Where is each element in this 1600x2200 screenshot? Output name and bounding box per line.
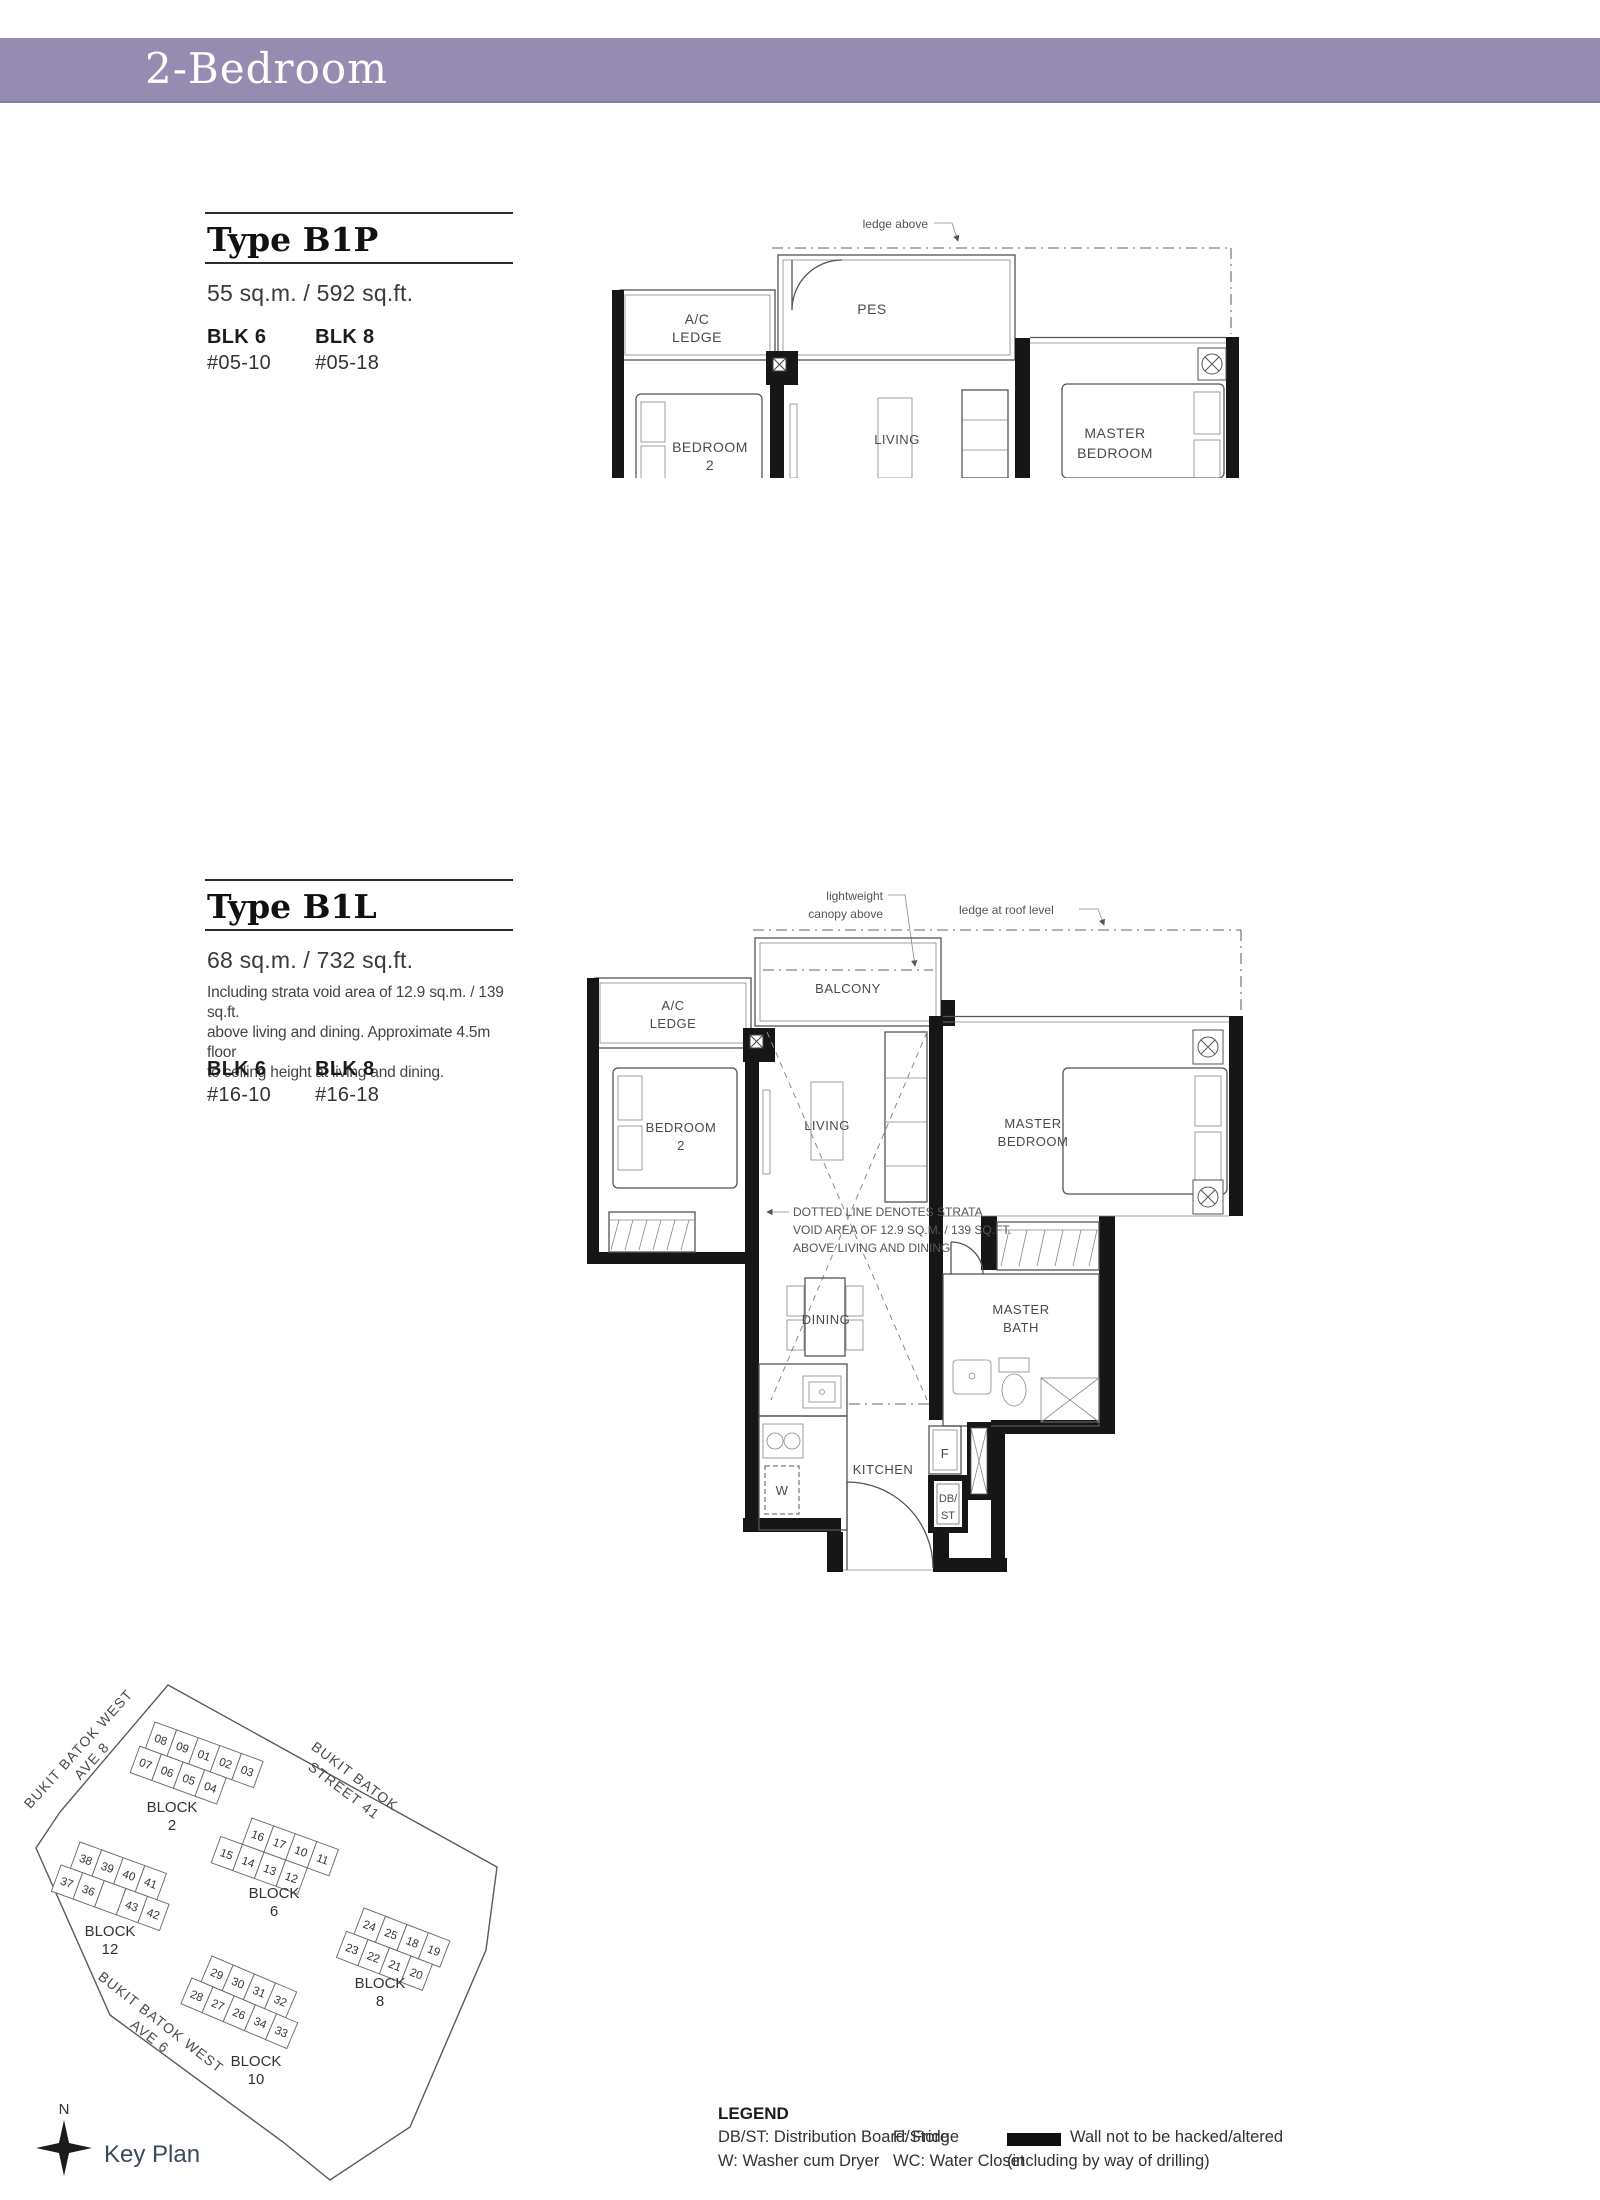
b1l-bedroom2-label-1: BEDROOM [646, 1120, 717, 1135]
compass-icon: N [36, 2101, 92, 2176]
block-2-label: BLOCK [147, 1799, 198, 1816]
b1p-ac-label-1: A/C [685, 311, 710, 327]
b1p-wc-icon [1198, 348, 1226, 380]
b1p-ledge-line: ledge above [772, 217, 1231, 334]
svg-text:8: 8 [376, 1993, 384, 2010]
b1l-bedroom2-wardrobe [609, 1212, 695, 1252]
block-10-label: BLOCK [231, 2053, 282, 2070]
wall-swatch [1007, 2133, 1061, 2146]
street-bukit-batok-west-ave8: BUKIT BATOK WEST AVE 8 [21, 1686, 150, 1824]
b1p-entry-door-arc [792, 260, 842, 310]
b1l-balcony-label: BALCONY [815, 981, 881, 996]
b1l-void-annotation: DOTTED LINE DENOTES STRATA VOID AREA OF … [767, 1205, 1012, 1255]
b1l-void-label-1: DOTTED LINE DENOTES STRATA [793, 1205, 983, 1219]
legend-washer: W: Washer cum Dryer [718, 2152, 879, 2171]
keyplan-block-12: 38 39 40 41 37 36 43 42 [51, 1839, 178, 1931]
keyplan-title: Key Plan [104, 2141, 200, 2168]
b1l-washer-label: W [776, 1483, 789, 1498]
b1l-kitchen-cooktop [763, 1424, 803, 1458]
b1l-bath-toilet [1002, 1374, 1026, 1406]
b1l-ac-label-1: A/C [661, 998, 684, 1013]
b1l-dining-label: DINING [802, 1312, 851, 1327]
b1p-rule-top [205, 212, 513, 214]
b1l-note-line1: Including strata void area of 12.9 sq.m.… [207, 984, 504, 1021]
b1l-rule-bottom [205, 929, 513, 931]
compass-north-label: N [59, 2101, 70, 2118]
b1l-area: 68 sq.m. / 732 sq.ft. [207, 947, 413, 974]
b1l-bath-door-arc [951, 1242, 983, 1274]
b1l-void-label-3: ABOVE LIVING AND DINING [793, 1241, 950, 1255]
block-12-label: BLOCK [85, 1923, 136, 1940]
b1l-bath-shower [1041, 1378, 1099, 1422]
b1l-shaft-icon [750, 1035, 763, 1048]
block-8-label: BLOCK [355, 1975, 406, 1992]
legend-wall-note-2: (including by way of drilling) [1007, 2152, 1210, 2171]
b1l-walls [587, 978, 1243, 1572]
b1l-room-ac-ledge: A/C LEDGE [595, 978, 751, 1048]
svg-text:10: 10 [248, 2071, 265, 2088]
b1p-stack-blk8: BLK 8 #05-18 [315, 326, 379, 375]
b1l-canopy-label-2: canopy above [808, 907, 883, 921]
b1p-type-heading: Type B1P [207, 220, 378, 259]
b1l-bath-sink [953, 1360, 991, 1394]
b1p-room-bedroom2: BEDROOM 2 [636, 394, 762, 478]
b1l-type-heading: Type B1L [207, 887, 377, 926]
b1p-blk8-label: BLK 8 [315, 326, 379, 349]
keyplan-block-10: 29 30 31 32 28 27 26 34 33 [181, 1952, 309, 2048]
b1p-room-living: LIVING [790, 390, 1008, 478]
b1p-floor-plan: ledge above PES A/C LEDGE [610, 148, 1240, 478]
b1l-wc-icon-top [1193, 1030, 1223, 1064]
b1l-master-label-2: BEDROOM [998, 1134, 1069, 1149]
b1p-area: 55 sq.m. / 592 sq.ft. [207, 280, 413, 307]
b1l-kitchen-label: KITCHEN [853, 1462, 914, 1477]
b1l-roof-ledge-label: ledge at roof level [959, 903, 1054, 917]
b1l-stack-blk6: BLK 6 #16-10 [207, 1058, 271, 1107]
svg-text:BUKIT BATOK WEST: BUKIT BATOK WEST [21, 1686, 136, 1812]
b1l-wc-icon-bottom [1193, 1180, 1223, 1214]
b1l-blk8-label: BLK 8 [315, 1058, 379, 1081]
b1p-pes-label: PES [857, 301, 887, 317]
page-title: 2-Bedroom [145, 44, 388, 93]
b1p-room-ac-ledge: A/C LEDGE [620, 290, 775, 360]
b1p-ac-label-2: LEDGE [672, 329, 722, 345]
b1l-master-wardrobe [997, 1222, 1099, 1270]
b1l-st-label: ST [941, 1510, 955, 1522]
b1l-db-st: DB/ ST [931, 1478, 965, 1530]
b1l-blk8-unit: #16-18 [315, 1084, 379, 1107]
b1l-bath-label-1: MASTER [992, 1302, 1049, 1317]
b1l-bath-label-2: BATH [1003, 1320, 1039, 1335]
brochure-page: 2-Bedroom Type B1P 55 sq.m. / 592 sq.ft.… [0, 0, 1600, 2200]
b1l-stacks: BLK 6 #16-10 BLK 8 #16-18 [207, 1058, 423, 1107]
b1p-bedroom2-label-1: BEDROOM [672, 439, 748, 455]
svg-text:6: 6 [270, 1903, 278, 1920]
b1p-blk6-label: BLK 6 [207, 326, 271, 349]
key-plan: BUKIT BATOK WEST AVE 8 BUKIT BATOK STREE… [0, 1680, 500, 2200]
b1l-room-bedroom2: BEDROOM 2 [609, 1068, 737, 1252]
svg-text:12: 12 [102, 1941, 119, 1958]
legend-wall-note-1: Wall not to be hacked/altered [1070, 2128, 1283, 2147]
b1l-db-label: DB/ [939, 1493, 958, 1505]
legend-title: LEGEND [718, 2104, 789, 2124]
b1l-blk6-label: BLK 6 [207, 1058, 271, 1081]
b1p-room-pes: PES [778, 255, 1015, 360]
b1l-room-kitchen: W KITCHEN [759, 1364, 913, 1530]
block-6-label: BLOCK [249, 1885, 300, 1902]
b1l-room-living: LIVING [763, 1032, 927, 1202]
b1l-bedroom2-label-2: 2 [677, 1138, 685, 1153]
b1p-master-label-1: MASTER [1084, 425, 1145, 441]
b1l-canopy-label-1: lightweight [826, 889, 883, 903]
b1l-fridge-label: F [941, 1446, 949, 1461]
b1p-stacks: BLK 6 #05-10 BLK 8 #05-18 [207, 326, 423, 375]
b1l-void-label-2: VOID AREA OF 12.9 SQ.M. / 139 SQ.FT. [793, 1223, 1012, 1237]
b1p-bedroom2-label-2: 2 [706, 457, 714, 473]
b1l-fridge: F [929, 1426, 961, 1474]
b1l-note-line2: above living and dining. Approximate 4.5… [207, 1024, 490, 1061]
b1p-shaft-icon [773, 358, 786, 371]
b1l-room-dining: DINING [787, 1278, 863, 1356]
b1l-bath-toilet-tank [999, 1358, 1029, 1372]
legend-fridge: F: Fridge [893, 2128, 959, 2147]
b1p-rule-bottom [205, 262, 513, 264]
b1l-living-label: LIVING [804, 1118, 850, 1133]
b1l-vent-shaft [967, 1422, 991, 1500]
b1p-blk6-unit: #05-10 [207, 352, 271, 375]
b1l-ac-label-2: LEDGE [650, 1016, 697, 1031]
b1p-living-label: LIVING [874, 432, 920, 447]
b1p-blk8-unit: #05-18 [315, 352, 379, 375]
b1l-entry-door [843, 1482, 933, 1570]
legend-wc: WC: Water Closet [893, 2152, 1024, 2171]
b1l-washer: W [765, 1466, 799, 1514]
page-banner: 2-Bedroom [0, 38, 1600, 103]
b1l-blk6-unit: #16-10 [207, 1084, 271, 1107]
b1l-floor-plan: lightweight canopy above ledge at roof l… [585, 882, 1255, 1597]
b1p-room-master: MASTER BEDROOM [1030, 338, 1226, 479]
b1l-master-label-1: MASTER [1004, 1116, 1061, 1131]
svg-text:2: 2 [168, 1817, 176, 1834]
b1l-rule-top [205, 879, 513, 881]
b1l-stack-blk8: BLK 8 #16-18 [315, 1058, 379, 1107]
b1p-ledge-above-label: ledge above [863, 217, 929, 231]
b1p-stack-blk6: BLK 6 #05-10 [207, 326, 271, 375]
street-bukit-batok-street41: BUKIT BATOK STREET 41 [298, 1738, 402, 1828]
b1p-master-label-2: BEDROOM [1077, 445, 1153, 461]
